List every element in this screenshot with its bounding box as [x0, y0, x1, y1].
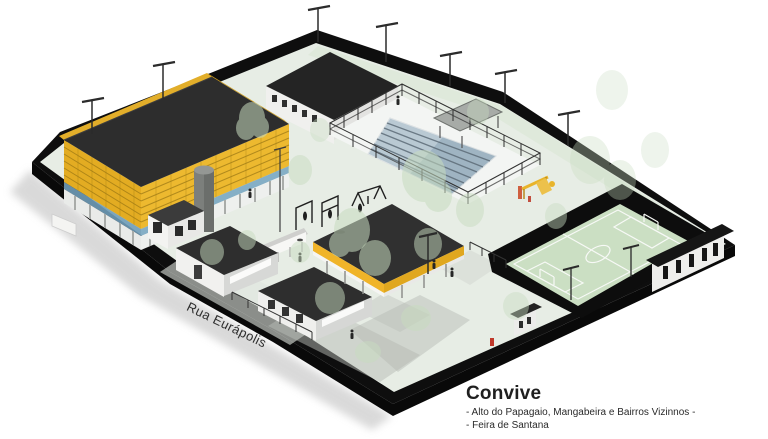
- project-subtitle-1: - Alto do Papagaio, Mangabeira e Bairros…: [466, 407, 695, 418]
- project-subtitle-2: - Feira de Santana: [466, 420, 695, 431]
- title-block: Convive - Alto do Papagaio, Mangabeira e…: [466, 383, 695, 431]
- site-rendering: [0, 0, 768, 439]
- architectural-rendering-page: Rua Eurápolis Convive - Alto do Papagaio…: [0, 0, 768, 439]
- red-hydrant: [490, 338, 494, 346]
- project-title: Convive: [466, 383, 695, 405]
